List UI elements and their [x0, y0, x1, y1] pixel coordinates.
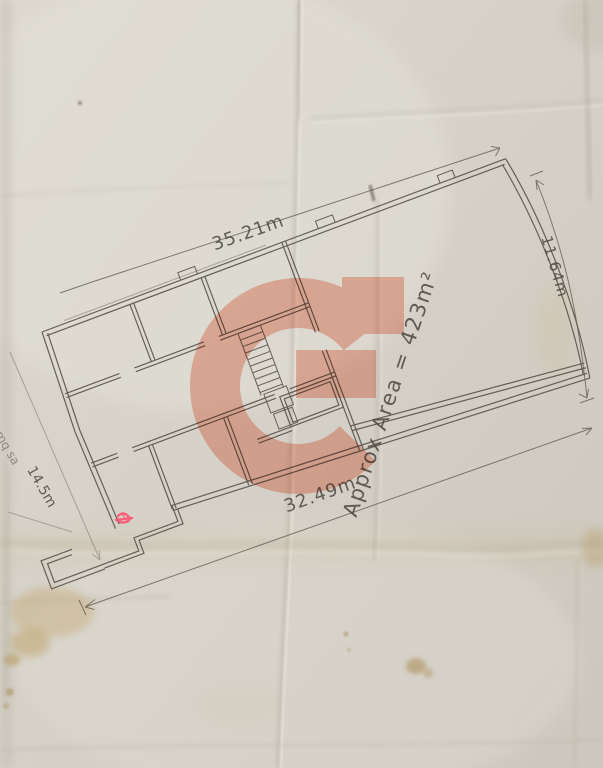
watermark-g-logo	[190, 277, 404, 494]
watermark-g-block	[342, 277, 404, 334]
watermark-g-bar	[296, 350, 376, 398]
floor-plan-photo: 35.21m 32.49m 11.64m 14.5m mq sa Approx …	[0, 0, 603, 768]
